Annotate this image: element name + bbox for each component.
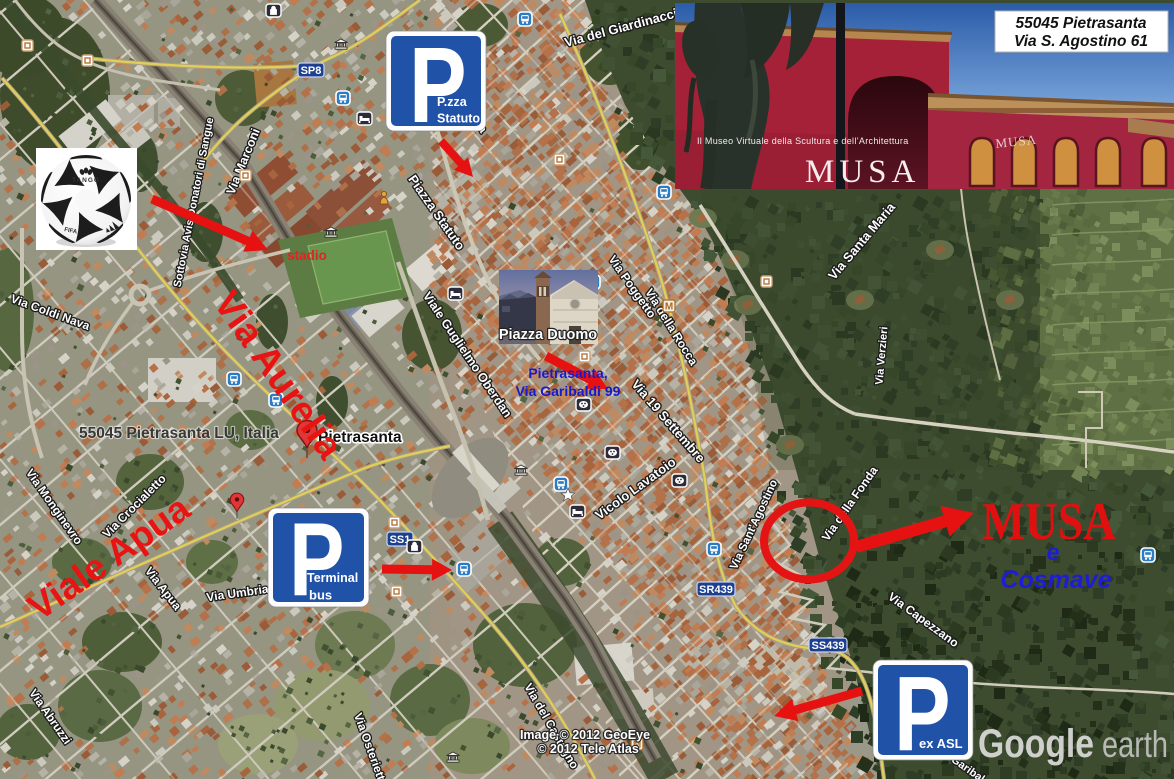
svg-text:P.zza: P.zza [437, 95, 468, 109]
svg-text:MUSA: MUSA [805, 154, 920, 190]
svg-text:ex ASL: ex ASL [919, 736, 963, 751]
svg-text:stadio: stadio [287, 248, 327, 263]
svg-text:Via Aurelia: Via Aurelia [205, 283, 351, 467]
svg-text:Piazza Duomo: Piazza Duomo [499, 327, 597, 343]
svg-text:Cosmave: Cosmave [1000, 566, 1111, 594]
svg-text:Via S. Agostino 61: Via S. Agostino 61 [1014, 33, 1148, 50]
svg-text:e: e [1047, 539, 1060, 565]
svg-text:55045 Pietrasanta: 55045 Pietrasanta [1016, 15, 1147, 32]
svg-text:Viale Apua: Viale Apua [20, 487, 197, 628]
svg-text:Il Museo Virtuale della Scultu: Il Museo Virtuale della Scultura e dell’… [697, 136, 909, 146]
svg-text:P: P [894, 655, 951, 773]
svg-text:Pietrasanta,: Pietrasanta, [528, 365, 607, 381]
svg-text:Terminal: Terminal [307, 571, 358, 585]
svg-text:Statuto: Statuto [437, 112, 480, 126]
svg-text:bus: bus [309, 588, 332, 603]
svg-text:P: P [409, 24, 467, 145]
svg-text:Via Garibaldi 99: Via Garibaldi 99 [516, 383, 621, 399]
svg-text:TANGO: TANGO [72, 177, 100, 184]
